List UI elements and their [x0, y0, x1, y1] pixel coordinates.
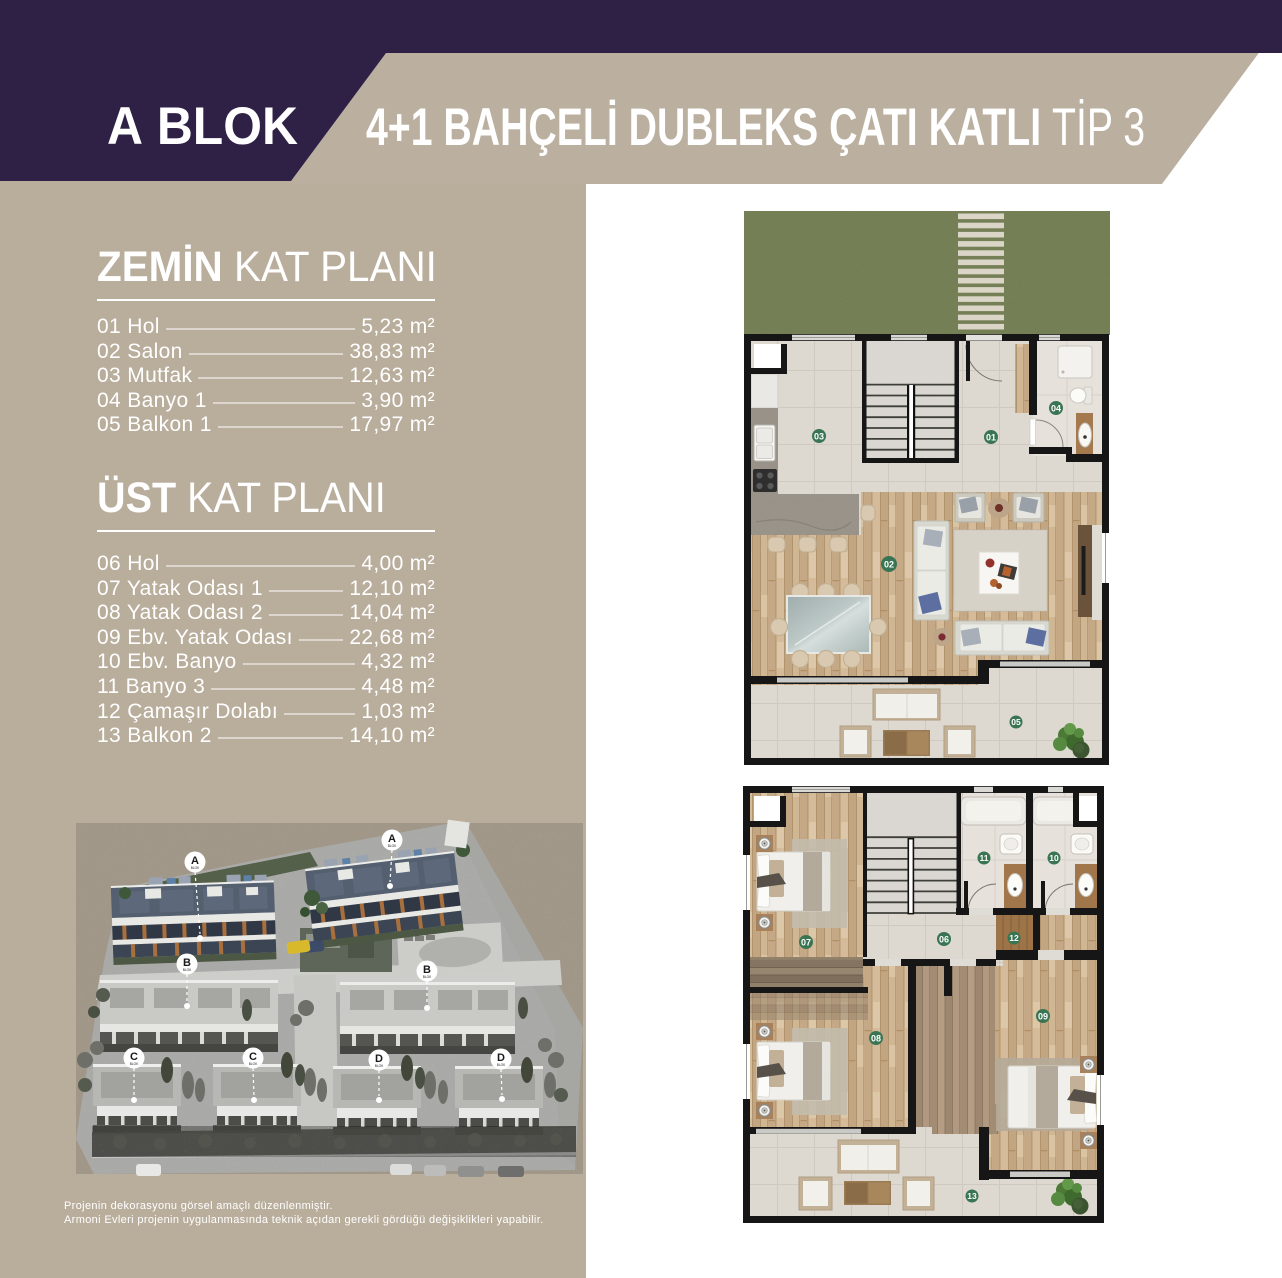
svg-text:08: 08	[871, 1033, 881, 1043]
svg-text:BLOK: BLOK	[191, 866, 200, 870]
svg-text:05: 05	[1011, 717, 1021, 727]
svg-text:02: 02	[884, 560, 894, 570]
svg-text:06: 06	[939, 934, 949, 944]
svg-text:01: 01	[986, 432, 996, 442]
svg-text:BLOK: BLOK	[423, 975, 432, 979]
svg-text:BLOK: BLOK	[183, 968, 192, 972]
svg-text:BLOK: BLOK	[497, 1063, 506, 1067]
svg-text:11: 11	[980, 853, 989, 863]
svg-text:BLOK: BLOK	[375, 1064, 384, 1068]
svg-text:04: 04	[1051, 403, 1061, 413]
svg-text:09: 09	[1038, 1011, 1048, 1021]
svg-text:03: 03	[814, 431, 824, 441]
svg-text:12: 12	[1009, 933, 1019, 943]
svg-text:10: 10	[1049, 853, 1059, 863]
svg-text:BLOK: BLOK	[130, 1062, 139, 1066]
svg-text:BLOK: BLOK	[249, 1062, 258, 1066]
svg-text:07: 07	[801, 937, 811, 947]
svg-text:BLOK: BLOK	[388, 844, 397, 848]
svg-text:13: 13	[967, 1191, 977, 1201]
